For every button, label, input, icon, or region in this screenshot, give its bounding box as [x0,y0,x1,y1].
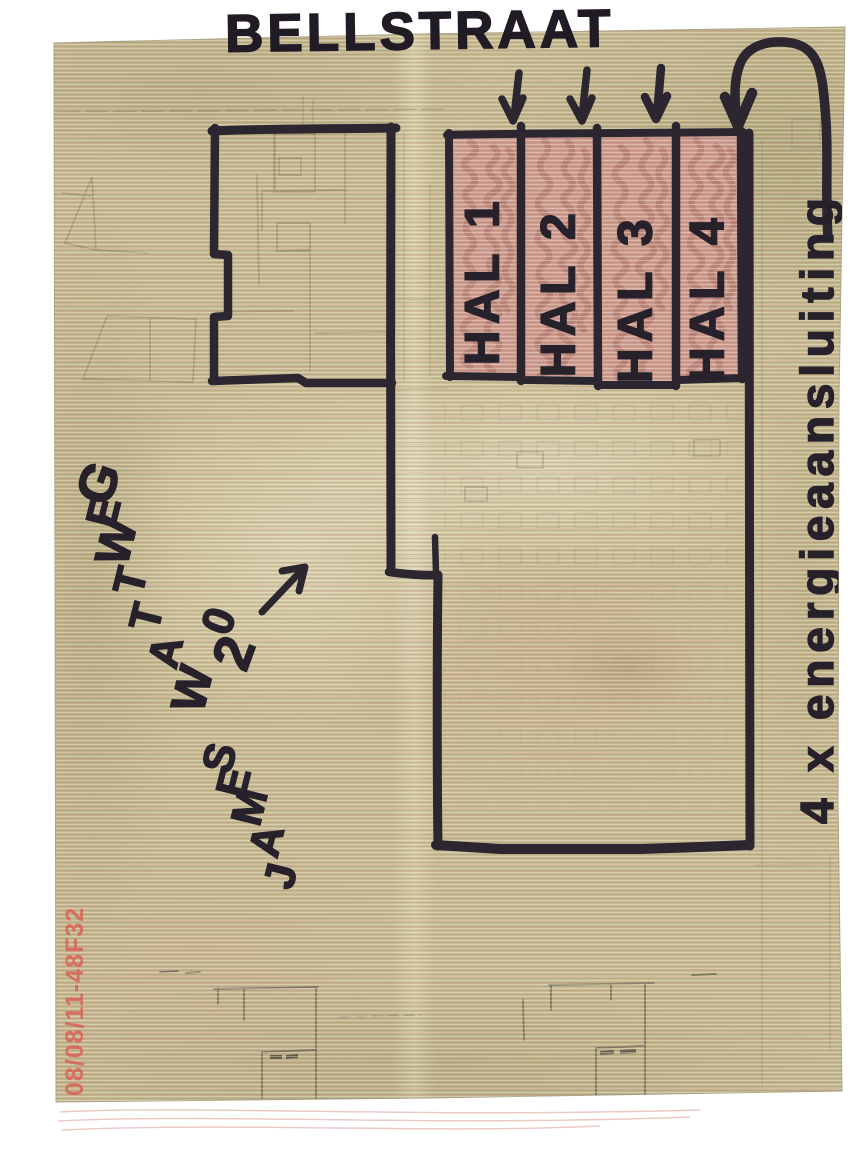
svg-text:BELLSTRAAT: BELLSTRAAT [225,0,615,64]
svg-text:HAL 1: HAL 1 [457,195,510,365]
svg-text:4 x energieaansluiting: 4 x energieaansluiting [791,191,843,824]
svg-text:HAL 3: HAL 3 [610,213,663,383]
svg-text:08/08/11-48F32: 08/08/11-48F32 [61,907,89,1096]
svg-text:HAL 4: HAL 4 [682,212,735,382]
svg-text:HAL 2: HAL 2 [533,207,586,377]
